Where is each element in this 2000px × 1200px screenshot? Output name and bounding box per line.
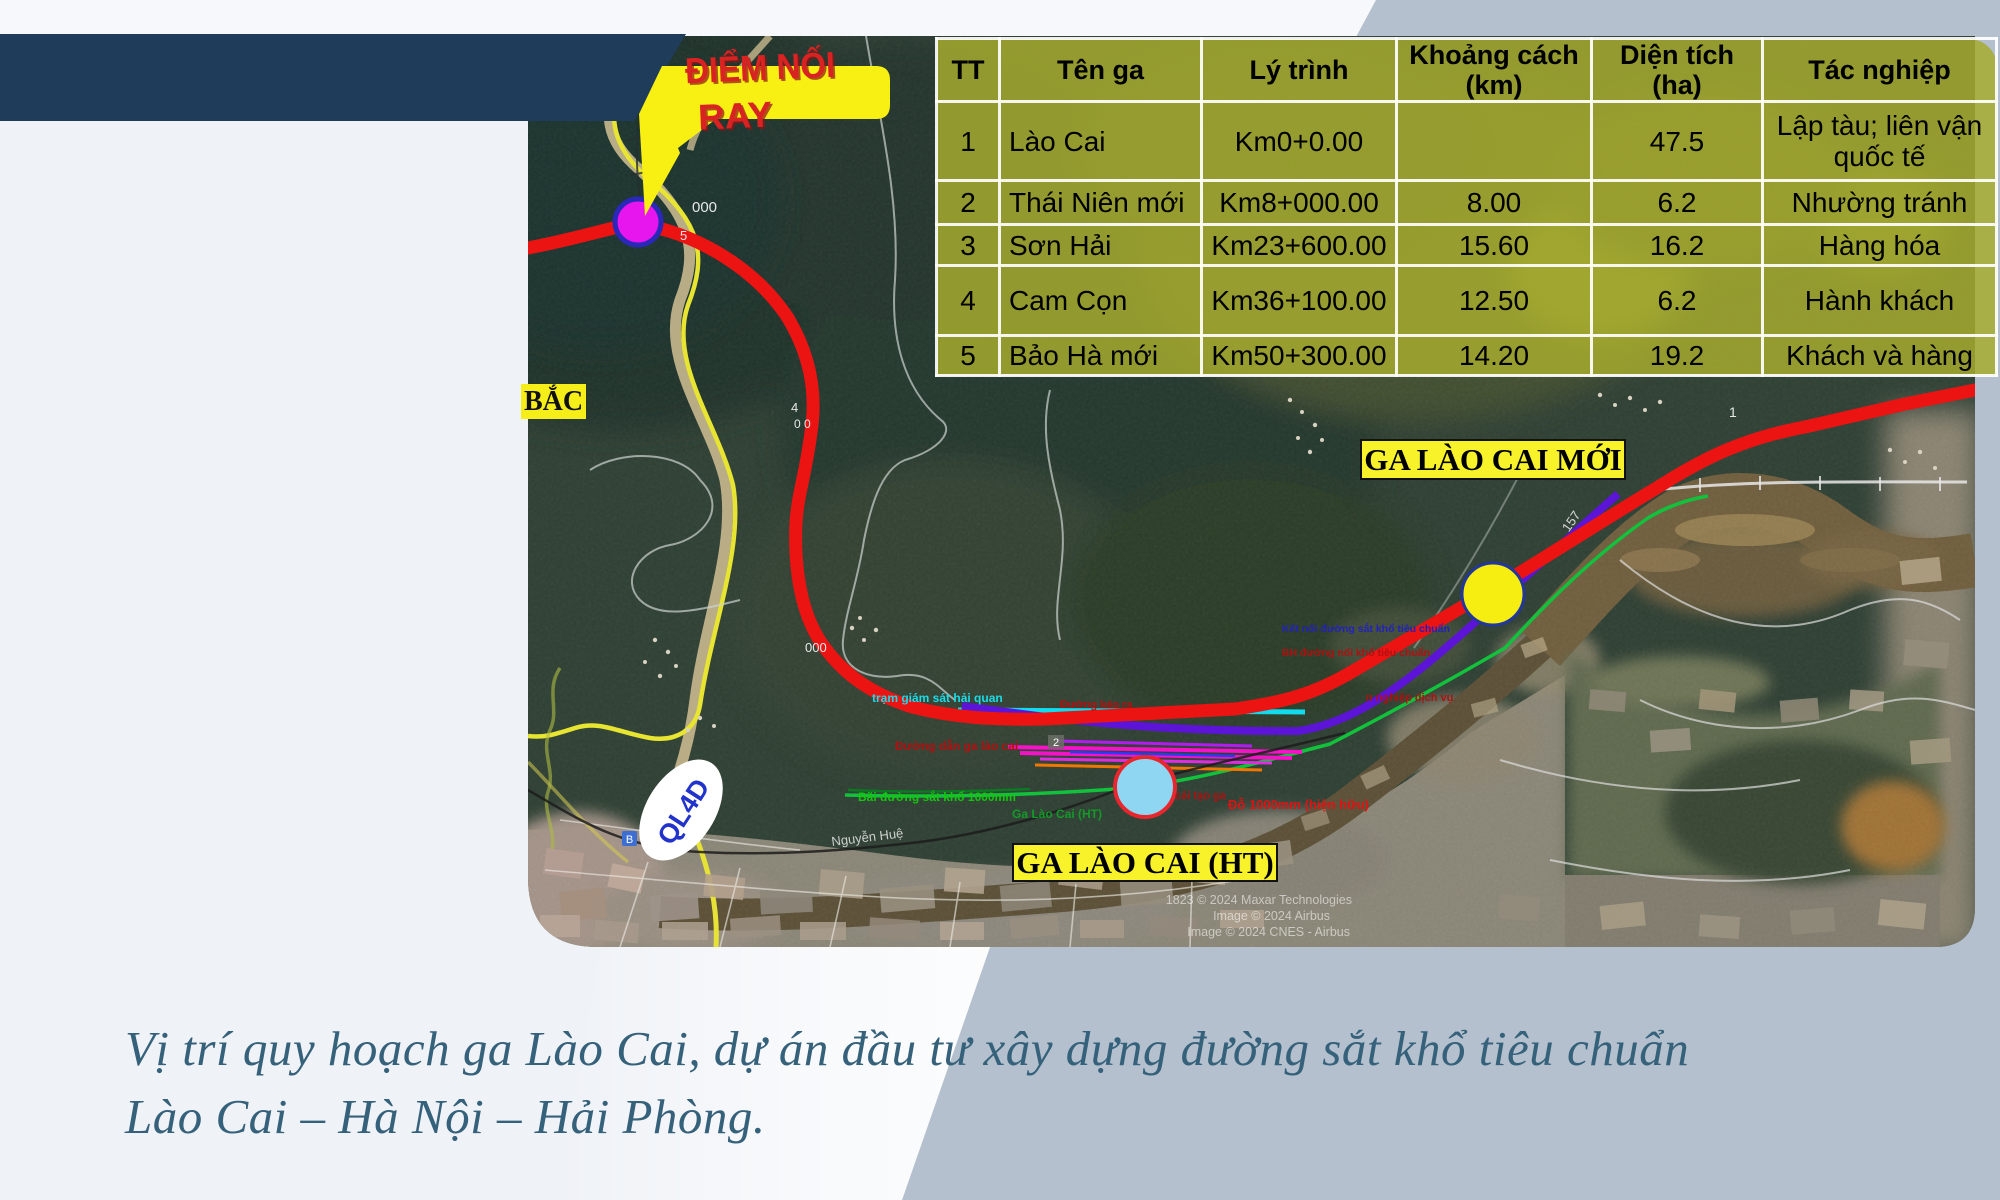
svg-text:BH đường nối khổ tiêu chuẩn: BH đường nối khổ tiêu chuẩn xyxy=(1282,647,1430,659)
svg-text:Đường dẫn ga lào cai: Đường dẫn ga lào cai xyxy=(895,738,1018,753)
svg-text:Kết nối đường sắt khổ tiêu chu: Kết nối đường sắt khổ tiêu chuẩn xyxy=(1282,622,1450,635)
svg-text:Image © 2024 Airbus: Image © 2024 Airbus xyxy=(1213,909,1330,923)
svg-text:ĐIỂM NỐI: ĐIỂM NỐI xyxy=(684,43,836,92)
svg-text:cải tạo ga: cải tạo ga xyxy=(1175,790,1227,802)
svg-text:4: 4 xyxy=(791,400,798,415)
svg-text:Đỗ 1000mm (hiện hữu): Đỗ 1000mm (hiện hữu) xyxy=(1228,797,1369,812)
svg-text:RAY: RAY xyxy=(697,94,773,138)
svg-text:Ga Lào Cai (HT): Ga Lào Cai (HT) xyxy=(1012,807,1102,821)
svg-text:1823 © 2024 Maxar Technologies: 1823 © 2024 Maxar Technologies xyxy=(1166,893,1352,907)
svg-text:n nghiệp dịch vụ: n nghiệp dịch vụ xyxy=(1366,692,1453,704)
svg-text:1: 1 xyxy=(1729,404,1737,420)
svg-text:B: B xyxy=(626,834,633,846)
svg-text:Bãi đường sắt khổ 1000mm: Bãi đường sắt khổ 1000mm xyxy=(858,789,1016,804)
svg-text:Image © 2024 CNES - Airbus: Image © 2024 CNES - Airbus xyxy=(1187,925,1350,939)
svg-text:000: 000 xyxy=(805,640,827,655)
svg-text:2: 2 xyxy=(1053,737,1059,749)
svg-text:Đường kéo ra: Đường kéo ra xyxy=(1060,699,1134,711)
svg-text:trạm giám sát hải quan: trạm giám sát hải quan xyxy=(872,691,1003,705)
svg-text:0 0: 0 0 xyxy=(794,417,811,431)
